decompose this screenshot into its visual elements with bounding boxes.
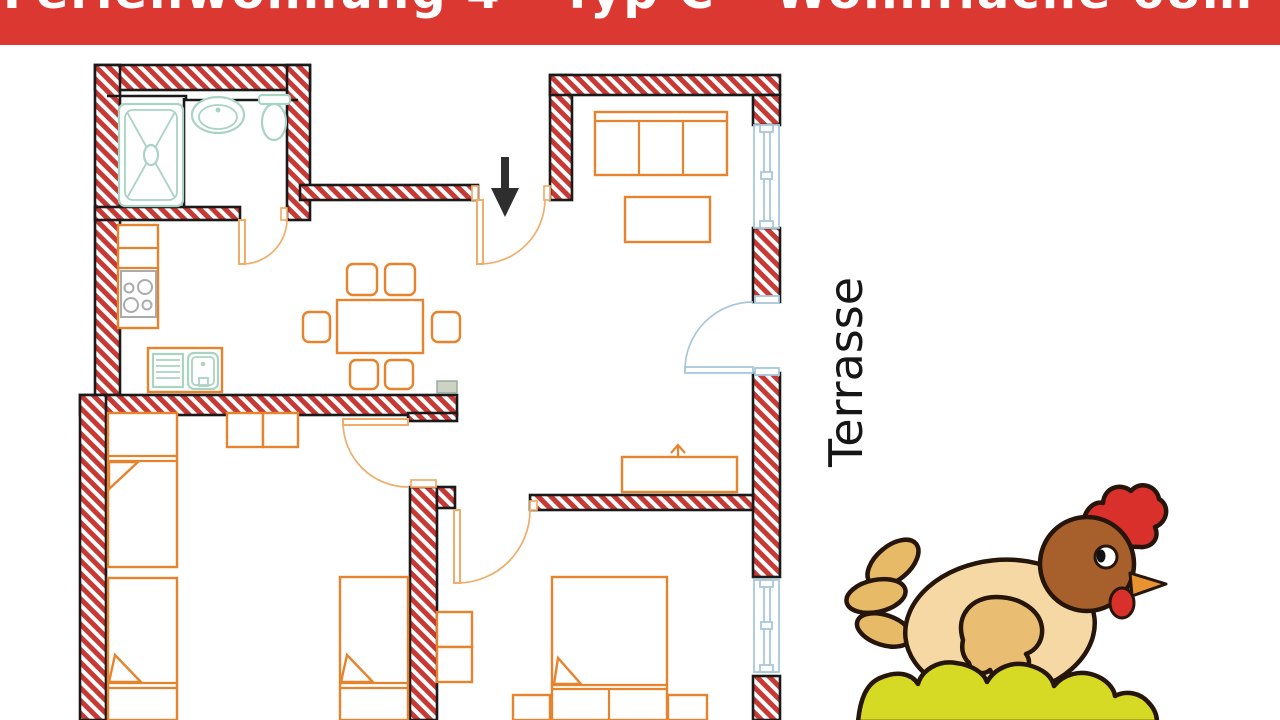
bedroom-right: [437, 577, 707, 720]
dresser: [437, 612, 472, 647]
wall-bathroom-bottom: [95, 207, 240, 220]
bathroom-door: [239, 208, 287, 264]
wall-right-c: [753, 373, 780, 577]
living-room-window: [754, 125, 779, 228]
bathroom: [107, 95, 298, 206]
wall-interior-notch: [437, 487, 455, 508]
wardrobe: [227, 413, 263, 447]
terrace-label: Terrasse: [819, 277, 873, 468]
terrace-door: [685, 296, 779, 375]
bedroom-left-door: [343, 419, 436, 487]
wall-living-top: [550, 75, 780, 95]
chicken-eye: [1095, 546, 1117, 568]
floorplan-svg: Terrasse: [0, 0, 1280, 720]
chair: [347, 264, 377, 295]
chicken-illustration: [843, 485, 1166, 720]
bedroom-window: [754, 580, 779, 672]
wall-left-lower: [80, 395, 106, 720]
washbasin: [192, 97, 244, 133]
chicken-beak: [1130, 573, 1166, 596]
kitchen-sink: [148, 348, 222, 392]
wardrobe: [263, 413, 298, 447]
chair: [432, 312, 460, 342]
wall-middle-step: [408, 413, 457, 421]
nightstand: [513, 695, 550, 720]
stove: [121, 271, 156, 317]
wall-hall-top: [300, 185, 478, 200]
single-bed: [108, 578, 177, 720]
chair: [350, 360, 378, 389]
toilet: [259, 95, 290, 140]
doors: [239, 186, 779, 583]
wall-right-d: [753, 676, 780, 720]
tv-arrow-icon: [671, 445, 685, 457]
wall-bathroom-top: [95, 65, 310, 90]
nightstand: [668, 695, 707, 720]
wall-bedroom-separator: [530, 495, 753, 510]
screenshot-root: Ferienwohnung 4 - Typ C - Wohnfläche 68m…: [0, 0, 1280, 720]
dining-area: [303, 264, 460, 393]
single-bed: [340, 577, 408, 720]
wall-left-upper: [95, 65, 120, 395]
wall-interior-vertical: [410, 487, 437, 720]
bedroom-right-door: [454, 501, 537, 583]
nest: [858, 662, 1157, 720]
living-room: [595, 112, 737, 492]
dining-table: [337, 300, 423, 353]
sideboard: [622, 445, 737, 492]
single-bed: [108, 413, 177, 567]
title-banner: Ferienwohnung 4 - Typ C - Wohnfläche 68m…: [0, 0, 1280, 45]
sofa: [595, 112, 727, 175]
entrance-arrow-icon: [491, 157, 519, 217]
banner-title: Ferienwohnung 4 - Typ C - Wohnfläche 68m…: [0, 0, 1280, 20]
chair: [385, 264, 415, 295]
chair: [303, 312, 330, 342]
bedroom-left: [108, 413, 408, 720]
chair: [385, 360, 413, 389]
wall-right-a: [753, 95, 780, 125]
wall-right-b: [753, 228, 780, 302]
coffee-table: [625, 197, 710, 242]
shower: [119, 104, 183, 206]
dresser: [437, 647, 472, 682]
double-bed: [552, 577, 667, 720]
chicken-wattle: [1110, 588, 1134, 618]
kitchen: [118, 225, 222, 392]
radiator: [437, 381, 457, 393]
